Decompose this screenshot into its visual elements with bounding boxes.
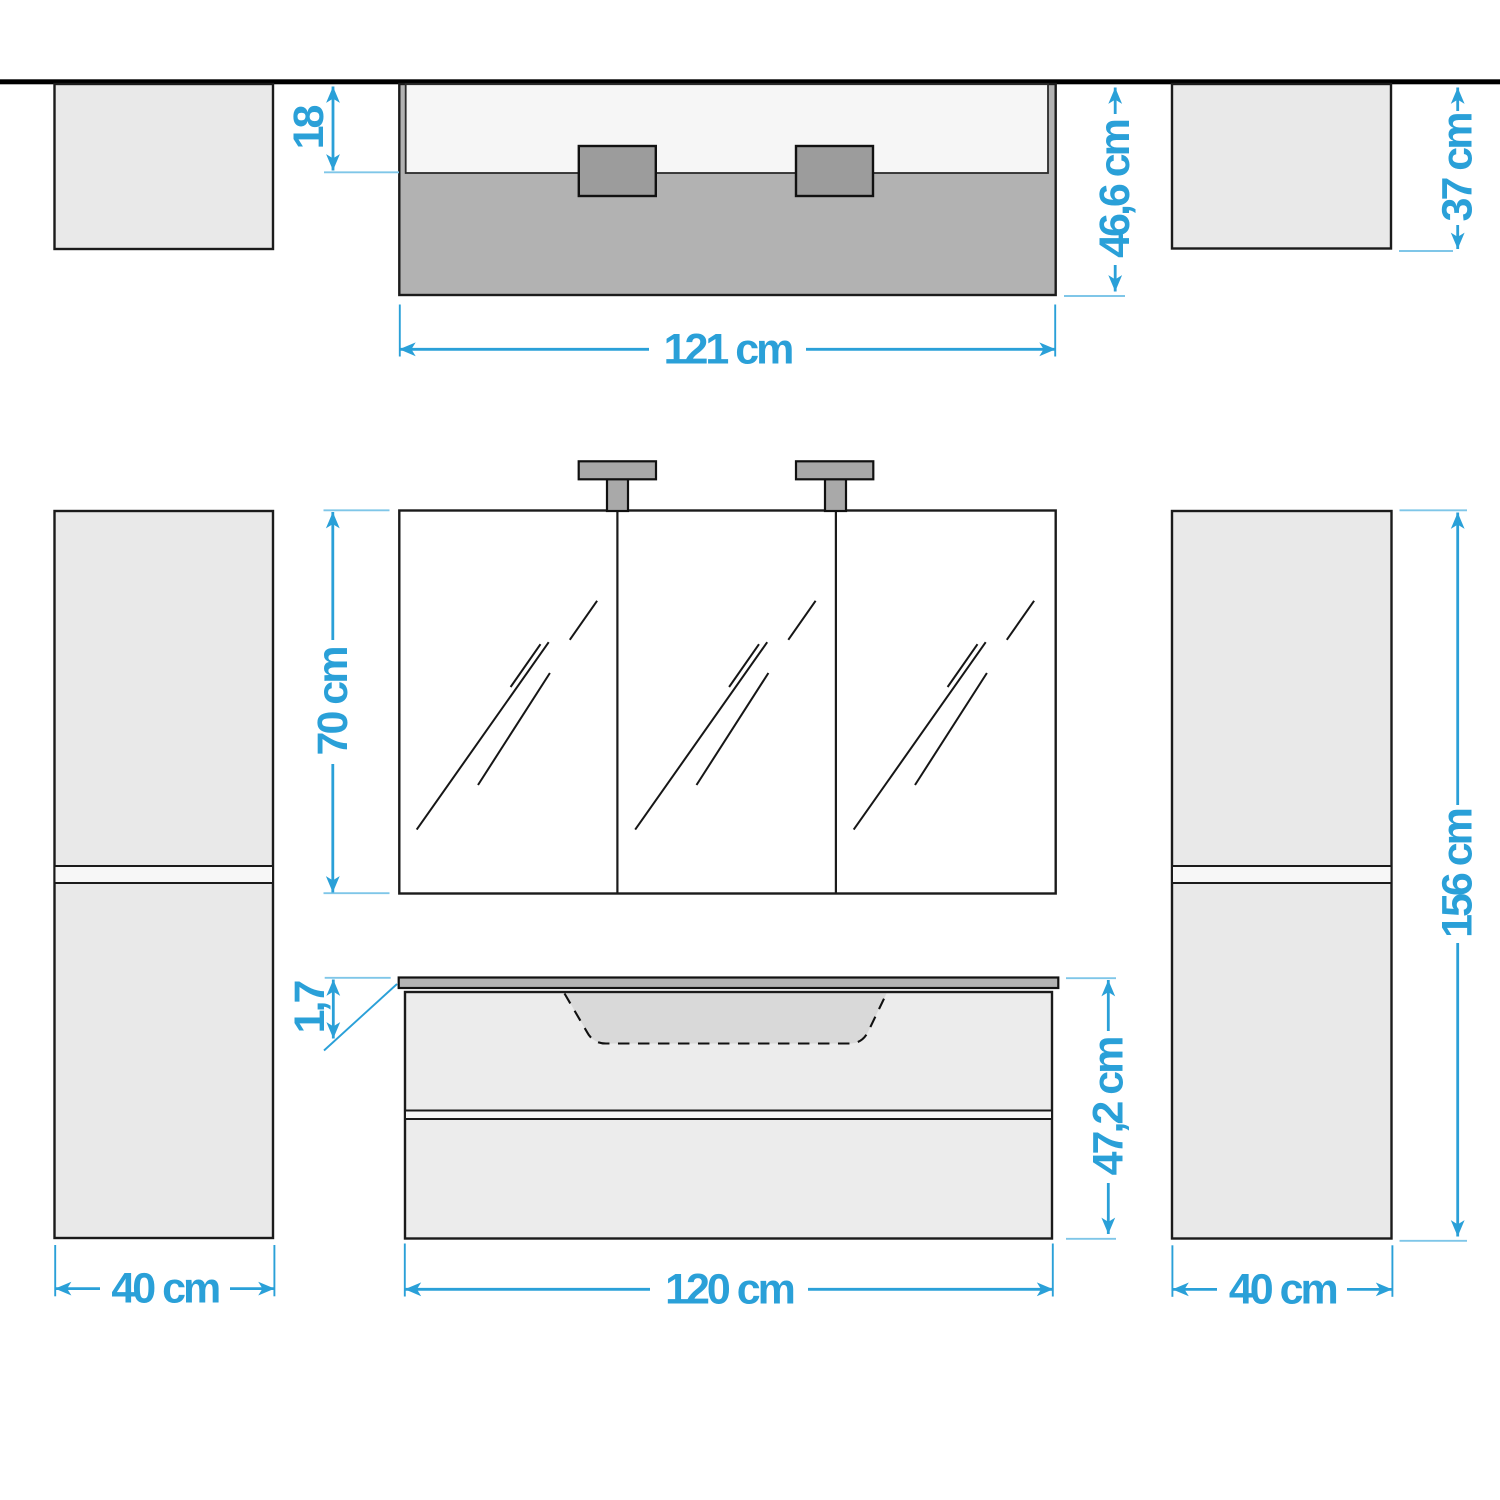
svg-text:120 cm: 120 cm [665, 1265, 794, 1313]
svg-text:47,2 cm: 47,2 cm [1084, 1038, 1132, 1176]
svg-text:46,6 cm: 46,6 cm [1091, 120, 1139, 258]
svg-text:37 cm: 37 cm [1434, 114, 1482, 222]
svg-text:70 cm: 70 cm [309, 648, 357, 756]
svg-text:40 cm: 40 cm [111, 1265, 219, 1313]
svg-text:40 cm: 40 cm [1229, 1265, 1337, 1313]
svg-text:1,7: 1,7 [286, 981, 334, 1034]
svg-text:18: 18 [285, 106, 333, 150]
svg-text:156 cm: 156 cm [1434, 809, 1482, 938]
svg-text:121 cm: 121 cm [664, 325, 793, 373]
